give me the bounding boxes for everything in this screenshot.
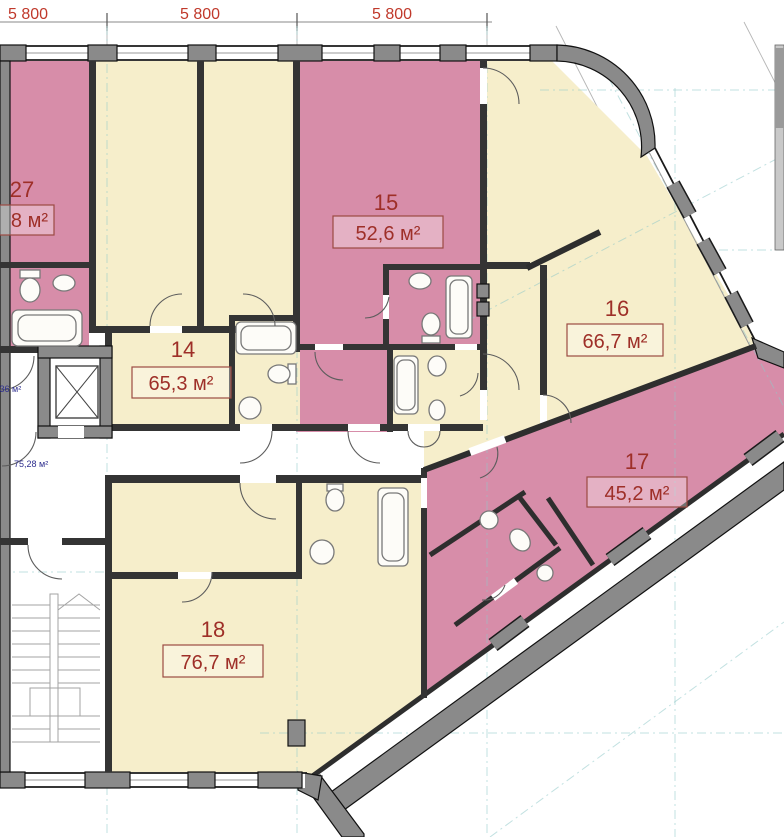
bathtub-symbol — [394, 356, 418, 414]
sink-symbol — [537, 565, 553, 581]
sink-symbol — [239, 397, 261, 419]
room-27-area: 8 м² — [11, 210, 48, 232]
room-top-mid-fill — [197, 61, 296, 332]
room-16-area: 66,7 м² — [583, 331, 648, 353]
lobby-area-annotation: ,36 м² — [0, 384, 21, 394]
toilet-symbol — [422, 313, 440, 343]
room-17-number: 17 — [625, 449, 649, 474]
left-wall — [0, 61, 10, 772]
sink-symbol — [53, 275, 75, 291]
room-18-area: 76,7 м² — [181, 652, 246, 674]
stair-direction-arrow — [58, 594, 100, 610]
dimension-label: 5 800 — [372, 6, 412, 23]
toilet-symbol — [20, 270, 40, 302]
corridor-area-annotation: 75,28 м² — [14, 459, 48, 469]
room-27-fill — [0, 61, 89, 268]
room-14-number: 14 — [171, 337, 195, 362]
toilet-symbol — [429, 400, 445, 420]
toilet-symbol — [326, 484, 344, 511]
toilet-symbol — [268, 364, 296, 384]
toilet-symbol — [428, 356, 446, 376]
room-18-fill — [105, 475, 424, 782]
column — [288, 720, 305, 746]
room-15-area: 52,6 м² — [356, 223, 421, 245]
bathtub-symbol — [236, 322, 296, 354]
room-18-number: 18 — [201, 617, 225, 642]
sink-symbol — [409, 273, 431, 289]
bathtub-symbol — [378, 488, 408, 566]
floor-plan-drawing: 5 800 5 800 5 800 — [0, 0, 784, 837]
bathtub-symbol — [446, 276, 472, 338]
staircase — [12, 594, 100, 742]
dimension-label: 5 800 — [8, 6, 48, 23]
room-top-left-fill — [89, 61, 197, 332]
adjacent-building-strip-top — [775, 48, 784, 128]
sink-symbol — [310, 540, 334, 564]
room-14-area: 65,3 м² — [149, 373, 214, 395]
room-17-area: 45,2 м² — [605, 483, 670, 505]
elevator-shaft — [38, 346, 112, 438]
room-16-number: 16 — [605, 296, 629, 321]
bathtub-symbol — [12, 310, 82, 346]
sink-symbol — [480, 511, 498, 529]
dimension-label: 5 800 — [180, 6, 220, 23]
room-27-number: 27 — [10, 177, 34, 202]
room-15-number: 15 — [374, 190, 398, 215]
floor-plan: 5 800 5 800 5 800 — [0, 0, 784, 837]
